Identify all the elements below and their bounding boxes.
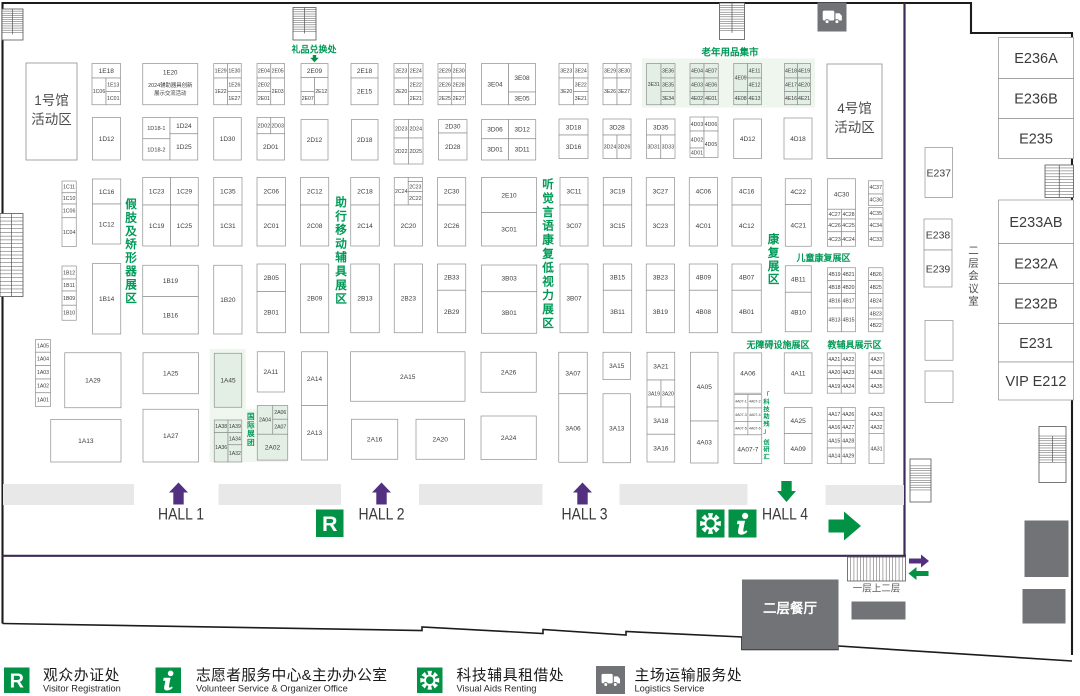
- svg-text:4A31: 4A31: [870, 446, 882, 452]
- svg-text:室: 室: [968, 294, 979, 307]
- svg-text:」: 」: [763, 428, 769, 435]
- svg-text:2C24: 2C24: [395, 189, 408, 195]
- svg-text:3A20: 3A20: [662, 391, 674, 397]
- svg-text:4A35: 4A35: [870, 384, 882, 390]
- svg-text:1E18: 1E18: [99, 68, 115, 75]
- svg-text:3E26: 3E26: [604, 89, 616, 95]
- svg-text:展示交流活动: 展示交流活动: [154, 89, 187, 97]
- svg-text:4A07-4: 4A07-4: [749, 413, 761, 417]
- svg-text:4A24: 4A24: [842, 384, 854, 390]
- svg-text:2D30: 2D30: [445, 124, 461, 131]
- svg-text:1C35: 1C35: [220, 189, 236, 196]
- svg-text:4C01: 4C01: [696, 223, 712, 230]
- svg-text:4D05: 4D05: [705, 142, 718, 148]
- svg-text:1C06: 1C06: [93, 89, 106, 95]
- svg-text:3E27: 3E27: [618, 89, 630, 95]
- svg-text:形: 形: [125, 252, 137, 265]
- svg-text:2D12: 2D12: [307, 137, 323, 144]
- svg-text:无障碍设施展区: 无障碍设施展区: [745, 339, 809, 350]
- svg-text:4A36: 4A36: [870, 370, 882, 376]
- svg-text:2A06: 2A06: [274, 410, 286, 416]
- svg-text:3D24: 3D24: [604, 145, 617, 151]
- svg-text:展: 展: [768, 260, 780, 273]
- svg-text:Logistics Service: Logistics Service: [635, 684, 705, 694]
- svg-text:3D28: 3D28: [609, 124, 625, 131]
- svg-text:1B19: 1B19: [163, 278, 179, 285]
- svg-text:HALL 2: HALL 2: [359, 505, 405, 524]
- svg-text:R: R: [322, 512, 338, 536]
- svg-text:肢: 肢: [125, 210, 137, 224]
- svg-text:2E07: 2E07: [302, 96, 314, 102]
- svg-text:2D03: 2D03: [271, 123, 284, 129]
- svg-text:1A13: 1A13: [78, 438, 94, 445]
- svg-text:2E22: 2E22: [410, 83, 422, 89]
- svg-text:2C22: 2C22: [409, 196, 422, 202]
- svg-text:4B16: 4B16: [828, 299, 840, 305]
- svg-text:2E04: 2E04: [258, 69, 270, 75]
- svg-text:2A26: 2A26: [501, 370, 517, 377]
- svg-text:4B01: 4B01: [739, 309, 755, 316]
- svg-text:4B13: 4B13: [828, 318, 840, 324]
- svg-text:研: 研: [763, 446, 770, 454]
- svg-text:教辅具展示区: 教辅具展示区: [826, 339, 881, 350]
- svg-text:4B26: 4B26: [870, 272, 882, 278]
- svg-text:4C24: 4C24: [842, 237, 855, 243]
- svg-text:2B33: 2B33: [444, 274, 460, 281]
- svg-text:二: 二: [968, 245, 979, 257]
- svg-text:区: 区: [125, 292, 137, 305]
- svg-text:3D06: 3D06: [487, 126, 503, 133]
- svg-text:3D01: 3D01: [487, 147, 503, 154]
- svg-text:2C12: 2C12: [307, 189, 323, 196]
- svg-text:觉: 觉: [542, 191, 554, 205]
- svg-text:4C33: 4C33: [870, 237, 883, 243]
- svg-text:活动区: 活动区: [31, 112, 72, 127]
- svg-text:4B21: 4B21: [842, 272, 854, 278]
- svg-text:4E09: 4E09: [735, 75, 747, 81]
- svg-text:4A26: 4A26: [842, 412, 854, 418]
- svg-text:4A33: 4A33: [870, 412, 882, 418]
- svg-text:4D12: 4D12: [740, 136, 756, 143]
- svg-text:E236A: E236A: [1014, 51, 1058, 67]
- svg-text:1A45: 1A45: [220, 378, 236, 385]
- svg-text:3C11: 3C11: [566, 189, 581, 196]
- svg-text:2E05: 2E05: [272, 69, 284, 75]
- svg-text:科: 科: [763, 398, 770, 406]
- svg-text:4B23: 4B23: [870, 311, 882, 317]
- svg-text:1E26: 1E26: [228, 83, 240, 89]
- svg-text:1C06: 1C06: [63, 209, 76, 215]
- svg-text:2A20: 2A20: [433, 437, 449, 444]
- svg-text:4C06: 4C06: [696, 189, 712, 196]
- svg-text:1B16: 1B16: [163, 313, 179, 320]
- svg-text:4B25: 4B25: [870, 285, 882, 291]
- svg-text:4E18: 4E18: [785, 69, 797, 75]
- svg-text:2D24: 2D24: [410, 127, 423, 133]
- svg-text:4E07: 4E07: [705, 69, 717, 75]
- svg-text:助: 助: [763, 413, 769, 421]
- svg-text:3E20: 3E20: [560, 89, 572, 95]
- svg-text:1C19: 1C19: [149, 223, 165, 230]
- svg-text:4A14: 4A14: [828, 454, 840, 460]
- svg-text:4B09: 4B09: [696, 274, 712, 281]
- svg-text:2C30: 2C30: [444, 189, 460, 196]
- svg-text:4A03: 4A03: [697, 439, 713, 446]
- svg-text:1B14: 1B14: [99, 296, 115, 303]
- svg-text:1C12: 1C12: [99, 221, 115, 228]
- svg-text:3E22: 3E22: [575, 83, 587, 89]
- svg-text:「: 「: [763, 391, 770, 399]
- svg-text:4A07-6: 4A07-6: [749, 426, 761, 430]
- svg-text:4A07-2: 4A07-2: [749, 399, 761, 403]
- svg-text:4A20: 4A20: [828, 370, 840, 376]
- svg-text:1C11: 1C11: [63, 185, 75, 191]
- svg-text:4A07-3: 4A07-3: [735, 413, 747, 417]
- svg-text:2E10: 2E10: [501, 192, 517, 199]
- svg-text:4E08: 4E08: [735, 96, 747, 102]
- svg-text:2D01: 2D01: [263, 144, 279, 151]
- svg-text:4B24: 4B24: [870, 299, 882, 305]
- svg-text:展: 展: [542, 303, 554, 316]
- svg-text:2A07: 2A07: [274, 425, 286, 431]
- svg-text:4A21: 4A21: [828, 357, 840, 363]
- svg-text:2C14: 2C14: [357, 223, 373, 230]
- svg-text:4C35: 4C35: [870, 211, 883, 217]
- svg-text:4E03: 4E03: [691, 83, 703, 89]
- svg-text:4C16: 4C16: [739, 189, 755, 196]
- svg-text:E235: E235: [1019, 132, 1053, 148]
- svg-text:4C30: 4C30: [834, 191, 850, 198]
- svg-text:2D25: 2D25: [410, 149, 423, 155]
- svg-text:4A17: 4A17: [828, 412, 840, 418]
- svg-text:1B11: 1B11: [63, 283, 75, 289]
- svg-text:4E04: 4E04: [691, 69, 703, 75]
- svg-text:4A16: 4A16: [828, 425, 840, 431]
- svg-text:3C19: 3C19: [610, 189, 626, 196]
- svg-text:2C08: 2C08: [307, 223, 323, 230]
- svg-text:3D16: 3D16: [566, 144, 582, 151]
- svg-text:1C04: 1C04: [63, 230, 76, 236]
- svg-text:4A15: 4A15: [828, 439, 840, 445]
- svg-text:复: 复: [541, 247, 554, 261]
- svg-text:HALL 3: HALL 3: [562, 505, 608, 524]
- svg-text:3E36: 3E36: [662, 69, 674, 75]
- svg-text:康: 康: [768, 232, 780, 246]
- svg-text:2C18: 2C18: [357, 189, 373, 196]
- svg-text:汇: 汇: [763, 453, 770, 461]
- svg-text:1A04: 1A04: [37, 357, 49, 363]
- svg-text:展: 展: [335, 279, 347, 292]
- svg-text:2B05: 2B05: [264, 275, 280, 282]
- svg-text:科技辅具租借处: 科技辅具租借处: [457, 667, 565, 684]
- svg-text:2E25: 2E25: [439, 96, 451, 102]
- svg-text:2A02: 2A02: [265, 445, 281, 452]
- svg-text:1D12: 1D12: [99, 136, 115, 143]
- svg-text:3D11: 3D11: [515, 147, 530, 154]
- svg-text:4E12: 4E12: [748, 83, 760, 89]
- svg-text:议: 议: [968, 283, 979, 295]
- svg-text:2C06: 2C06: [263, 189, 279, 196]
- svg-text:4D06: 4D06: [705, 122, 718, 128]
- svg-text:E239: E239: [926, 263, 951, 275]
- svg-text:1号馆: 1号馆: [34, 93, 69, 108]
- svg-text:4E17: 4E17: [785, 83, 797, 89]
- svg-text:E231: E231: [1019, 336, 1053, 352]
- svg-text:3A19: 3A19: [648, 391, 660, 397]
- svg-text:1A25: 1A25: [163, 371, 179, 378]
- svg-text:4B15: 4B15: [842, 318, 854, 324]
- svg-text:E236B: E236B: [1014, 92, 1058, 108]
- svg-text:4D03: 4D03: [691, 122, 704, 128]
- svg-text:4C26: 4C26: [828, 223, 841, 229]
- svg-text:2A15: 2A15: [400, 374, 416, 381]
- svg-text:2E28: 2E28: [453, 83, 465, 89]
- svg-text:1A32: 1A32: [229, 451, 241, 457]
- svg-text:2E30: 2E30: [453, 69, 465, 75]
- svg-text:2A11: 2A11: [264, 369, 279, 376]
- svg-text:3C07: 3C07: [566, 223, 582, 230]
- svg-text:4A32: 4A32: [870, 425, 882, 431]
- svg-text:E233AB: E233AB: [1009, 215, 1062, 231]
- svg-text:1E13: 1E13: [107, 83, 119, 89]
- svg-text:3A13: 3A13: [609, 426, 625, 433]
- svg-text:2024辅助器具创新: 2024辅助器具创新: [148, 81, 193, 89]
- svg-text:2E01: 2E01: [258, 96, 270, 102]
- svg-text:1A01: 1A01: [37, 397, 49, 403]
- svg-text:2B09: 2B09: [307, 296, 323, 303]
- svg-text:4A25: 4A25: [791, 418, 807, 425]
- svg-text:3C23: 3C23: [653, 223, 669, 230]
- svg-text:2B13: 2B13: [357, 296, 373, 303]
- svg-text:1A38: 1A38: [215, 424, 227, 430]
- svg-text:4B19: 4B19: [828, 272, 840, 278]
- svg-text:E237: E237: [926, 167, 951, 179]
- svg-text:3C27: 3C27: [653, 189, 669, 196]
- svg-text:4D01: 4D01: [691, 151, 703, 157]
- svg-text:4C25: 4C25: [842, 223, 855, 229]
- svg-text:2A13: 2A13: [307, 430, 323, 437]
- svg-text:1C16: 1C16: [99, 189, 115, 196]
- svg-text:志愿者服务中心&主办办公室: 志愿者服务中心&主办办公室: [196, 667, 387, 684]
- svg-text:2E21: 2E21: [410, 96, 422, 102]
- svg-text:4C34: 4C34: [870, 223, 883, 229]
- svg-text:4B17: 4B17: [842, 299, 854, 305]
- svg-text:4C22: 4C22: [790, 189, 806, 196]
- svg-text:1D18-1: 1D18-1: [147, 126, 165, 132]
- svg-text:视: 视: [542, 274, 554, 288]
- svg-text:4E11: 4E11: [749, 69, 761, 75]
- svg-text:4A06: 4A06: [740, 370, 756, 377]
- svg-text:辅: 辅: [335, 250, 347, 264]
- svg-text:低: 低: [541, 260, 554, 274]
- svg-text:4A23: 4A23: [842, 370, 854, 376]
- svg-text:2B01: 2B01: [264, 309, 280, 316]
- svg-text:行: 行: [334, 209, 347, 223]
- svg-text:语: 语: [542, 219, 554, 233]
- svg-text:E232B: E232B: [1014, 297, 1058, 313]
- svg-text:2C20: 2C20: [401, 223, 417, 230]
- svg-text:3A16: 3A16: [653, 445, 669, 452]
- svg-text:创: 创: [762, 439, 769, 447]
- svg-text:2C01: 2C01: [263, 223, 279, 230]
- svg-text:4E20: 4E20: [798, 83, 810, 89]
- svg-text:具: 具: [335, 265, 347, 278]
- svg-text:2D23: 2D23: [395, 127, 408, 133]
- svg-text:1A05: 1A05: [37, 344, 49, 350]
- svg-text:4号馆: 4号馆: [837, 101, 872, 116]
- svg-text:4A11: 4A11: [791, 370, 806, 377]
- svg-text:4C37: 4C37: [870, 185, 883, 191]
- svg-text:3A18: 3A18: [653, 418, 669, 425]
- svg-text:3D26: 3D26: [618, 145, 631, 151]
- svg-text:1D18-2: 1D18-2: [147, 147, 165, 153]
- svg-text:4E13: 4E13: [748, 96, 760, 102]
- svg-text:2E26: 2E26: [439, 83, 451, 89]
- svg-text:4A19: 4A19: [828, 384, 840, 390]
- svg-text:1E30: 1E30: [228, 69, 240, 75]
- svg-text:2C23: 2C23: [409, 184, 421, 190]
- svg-text:1B10: 1B10: [63, 311, 75, 317]
- svg-text:2E02: 2E02: [258, 83, 270, 89]
- svg-text:Visitor Registration: Visitor Registration: [43, 684, 121, 694]
- svg-text:4C12: 4C12: [739, 223, 755, 230]
- svg-text:1C31: 1C31: [220, 223, 236, 230]
- svg-text:2D18: 2D18: [357, 137, 373, 144]
- svg-text:移: 移: [335, 223, 347, 237]
- svg-text:2E09: 2E09: [307, 68, 323, 75]
- svg-text:4C28: 4C28: [843, 212, 855, 218]
- svg-text:3E31: 3E31: [648, 82, 660, 88]
- svg-text:4A05: 4A05: [697, 384, 713, 391]
- svg-text:1A27: 1A27: [163, 433, 179, 440]
- svg-text:1E27: 1E27: [228, 96, 240, 102]
- svg-text:2A24: 2A24: [501, 435, 517, 442]
- svg-text:1C25: 1C25: [177, 223, 193, 230]
- svg-text:层: 层: [968, 258, 979, 270]
- svg-text:4B11: 4B11: [791, 276, 806, 283]
- svg-text:区: 区: [335, 293, 347, 306]
- svg-text:3E21: 3E21: [575, 96, 587, 102]
- svg-text:复: 复: [767, 245, 780, 259]
- svg-text:3E30: 3E30: [618, 69, 630, 75]
- svg-text:言: 言: [542, 205, 554, 219]
- svg-text:4B22: 4B22: [870, 323, 882, 329]
- svg-text:4B07: 4B07: [739, 274, 755, 281]
- svg-text:3A07: 3A07: [565, 370, 581, 377]
- svg-text:2E18: 2E18: [357, 68, 373, 75]
- svg-text:2B23: 2B23: [401, 296, 417, 303]
- svg-text:区: 区: [768, 273, 780, 286]
- svg-text:1C29: 1C29: [177, 189, 193, 196]
- svg-text:1E29: 1E29: [215, 69, 227, 75]
- svg-text:VIP E212: VIP E212: [1005, 374, 1066, 390]
- svg-text:3B23: 3B23: [653, 274, 669, 281]
- svg-text:3D33: 3D33: [662, 145, 675, 151]
- svg-text:Volunteer Service & Organizer: Volunteer Service & Organizer Office: [196, 684, 348, 694]
- svg-text:2D22: 2D22: [395, 149, 408, 155]
- svg-text:及: 及: [125, 225, 137, 238]
- svg-text:3B03: 3B03: [502, 276, 518, 283]
- svg-text:听: 听: [542, 177, 554, 191]
- svg-text:儿童康复展区: 儿童康复展区: [795, 252, 850, 263]
- svg-text:4A29: 4A29: [842, 454, 854, 460]
- svg-text:1B20: 1B20: [220, 297, 236, 304]
- svg-text:1A02: 1A02: [37, 384, 49, 390]
- svg-text:3A21: 3A21: [653, 363, 669, 370]
- svg-text:1A03: 1A03: [37, 370, 49, 376]
- svg-text:2E23: 2E23: [395, 69, 407, 75]
- svg-text:助: 助: [335, 195, 347, 209]
- svg-text:4A09: 4A09: [791, 446, 807, 453]
- svg-text:3C15: 3C15: [610, 223, 626, 230]
- svg-text:4A22: 4A22: [842, 357, 854, 363]
- svg-text:器: 器: [124, 265, 137, 278]
- svg-text:3E29: 3E29: [604, 69, 616, 75]
- svg-text:4E06: 4E06: [705, 83, 717, 89]
- svg-text:3A15: 3A15: [609, 363, 625, 370]
- svg-text:1C10: 1C10: [63, 196, 76, 202]
- svg-text:康: 康: [542, 233, 554, 247]
- svg-text:E238: E238: [926, 229, 951, 241]
- svg-text:2D28: 2D28: [445, 144, 461, 151]
- svg-text:2E15: 2E15: [357, 89, 373, 96]
- svg-text:3E05: 3E05: [514, 96, 530, 103]
- svg-text:残: 残: [763, 420, 770, 428]
- svg-text:1D24: 1D24: [176, 123, 192, 130]
- svg-text:假: 假: [125, 197, 137, 211]
- svg-text:1C23: 1C23: [149, 189, 165, 196]
- svg-text:矫: 矫: [125, 237, 137, 251]
- svg-text:3B11: 3B11: [610, 309, 625, 316]
- svg-text:2E27: 2E27: [453, 96, 465, 102]
- svg-text:4E01: 4E01: [705, 96, 717, 102]
- svg-text:2E29: 2E29: [439, 69, 451, 75]
- svg-text:4C27: 4C27: [829, 212, 841, 218]
- svg-text:1A39: 1A39: [229, 424, 241, 430]
- svg-text:R: R: [10, 670, 24, 692]
- svg-text:国: 国: [247, 411, 255, 421]
- svg-text:会: 会: [968, 269, 979, 282]
- svg-text:1D30: 1D30: [220, 136, 236, 143]
- svg-text:3E34: 3E34: [662, 96, 674, 102]
- svg-text:3E35: 3E35: [662, 83, 674, 89]
- svg-text:礼品兑换处: 礼品兑换处: [291, 44, 337, 55]
- svg-text:4A37: 4A37: [870, 357, 882, 363]
- svg-text:动: 动: [335, 236, 347, 250]
- svg-text:3D31: 3D31: [647, 145, 660, 151]
- svg-text:4B18: 4B18: [828, 285, 840, 291]
- svg-text:4E21: 4E21: [798, 96, 810, 102]
- svg-text:活动区: 活动区: [834, 120, 875, 135]
- svg-text:2B29: 2B29: [444, 309, 460, 316]
- svg-text:2E12: 2E12: [315, 89, 327, 95]
- svg-text:4C23: 4C23: [828, 237, 841, 243]
- svg-text:4C21: 4C21: [790, 223, 806, 230]
- svg-text:4B08: 4B08: [696, 309, 712, 316]
- svg-text:4D18: 4D18: [790, 136, 806, 143]
- svg-text:3E08: 3E08: [514, 75, 530, 82]
- svg-text:4E02: 4E02: [691, 96, 703, 102]
- svg-text:观众办证处: 观众办证处: [43, 667, 120, 684]
- svg-text:3A06: 3A06: [565, 425, 581, 432]
- svg-text:4B10: 4B10: [791, 309, 807, 316]
- svg-text:力: 力: [542, 288, 554, 302]
- svg-text:1A29: 1A29: [85, 378, 101, 385]
- svg-text:2E20: 2E20: [395, 89, 407, 95]
- svg-text:2E24: 2E24: [410, 69, 422, 75]
- svg-text:展: 展: [125, 278, 137, 291]
- svg-text:二层餐厅: 二层餐厅: [763, 600, 817, 616]
